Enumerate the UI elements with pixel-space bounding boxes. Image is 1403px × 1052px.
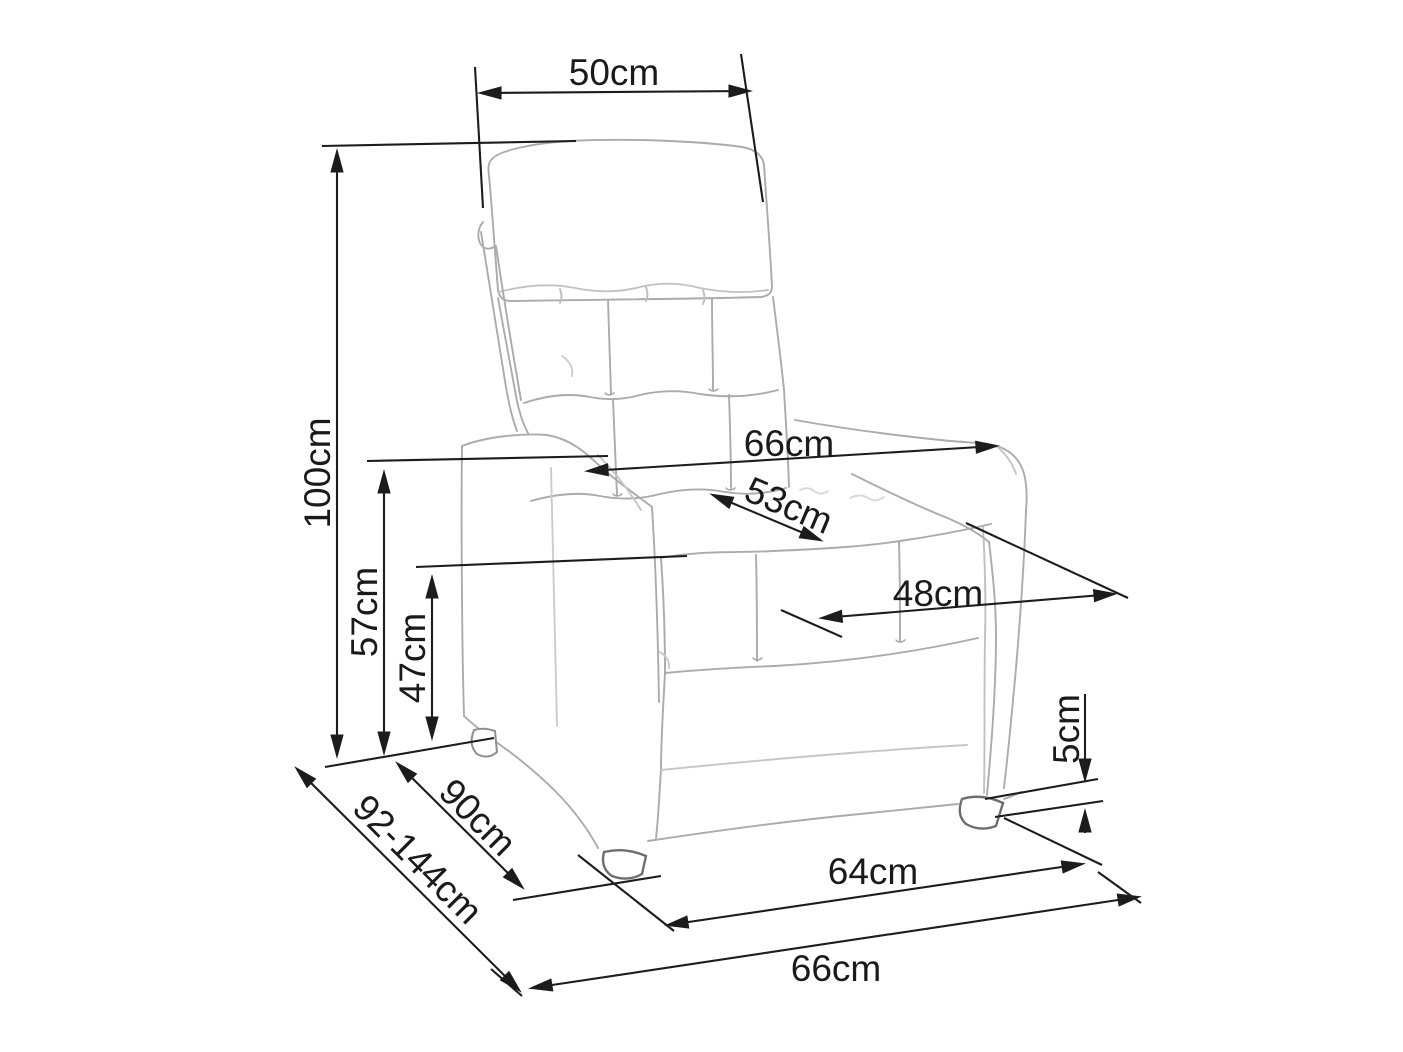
svg-text:57cm: 57cm [344, 567, 385, 657]
svg-text:64cm: 64cm [828, 851, 918, 892]
svg-text:47cm: 47cm [392, 613, 433, 703]
svg-text:48cm: 48cm [893, 573, 983, 614]
svg-text:66cm: 66cm [744, 423, 834, 464]
svg-text:100cm: 100cm [297, 417, 338, 528]
svg-text:50cm: 50cm [569, 52, 659, 93]
svg-text:90cm: 90cm [431, 771, 524, 864]
svg-text:5cm: 5cm [1046, 694, 1087, 764]
svg-text:66cm: 66cm [791, 948, 881, 989]
